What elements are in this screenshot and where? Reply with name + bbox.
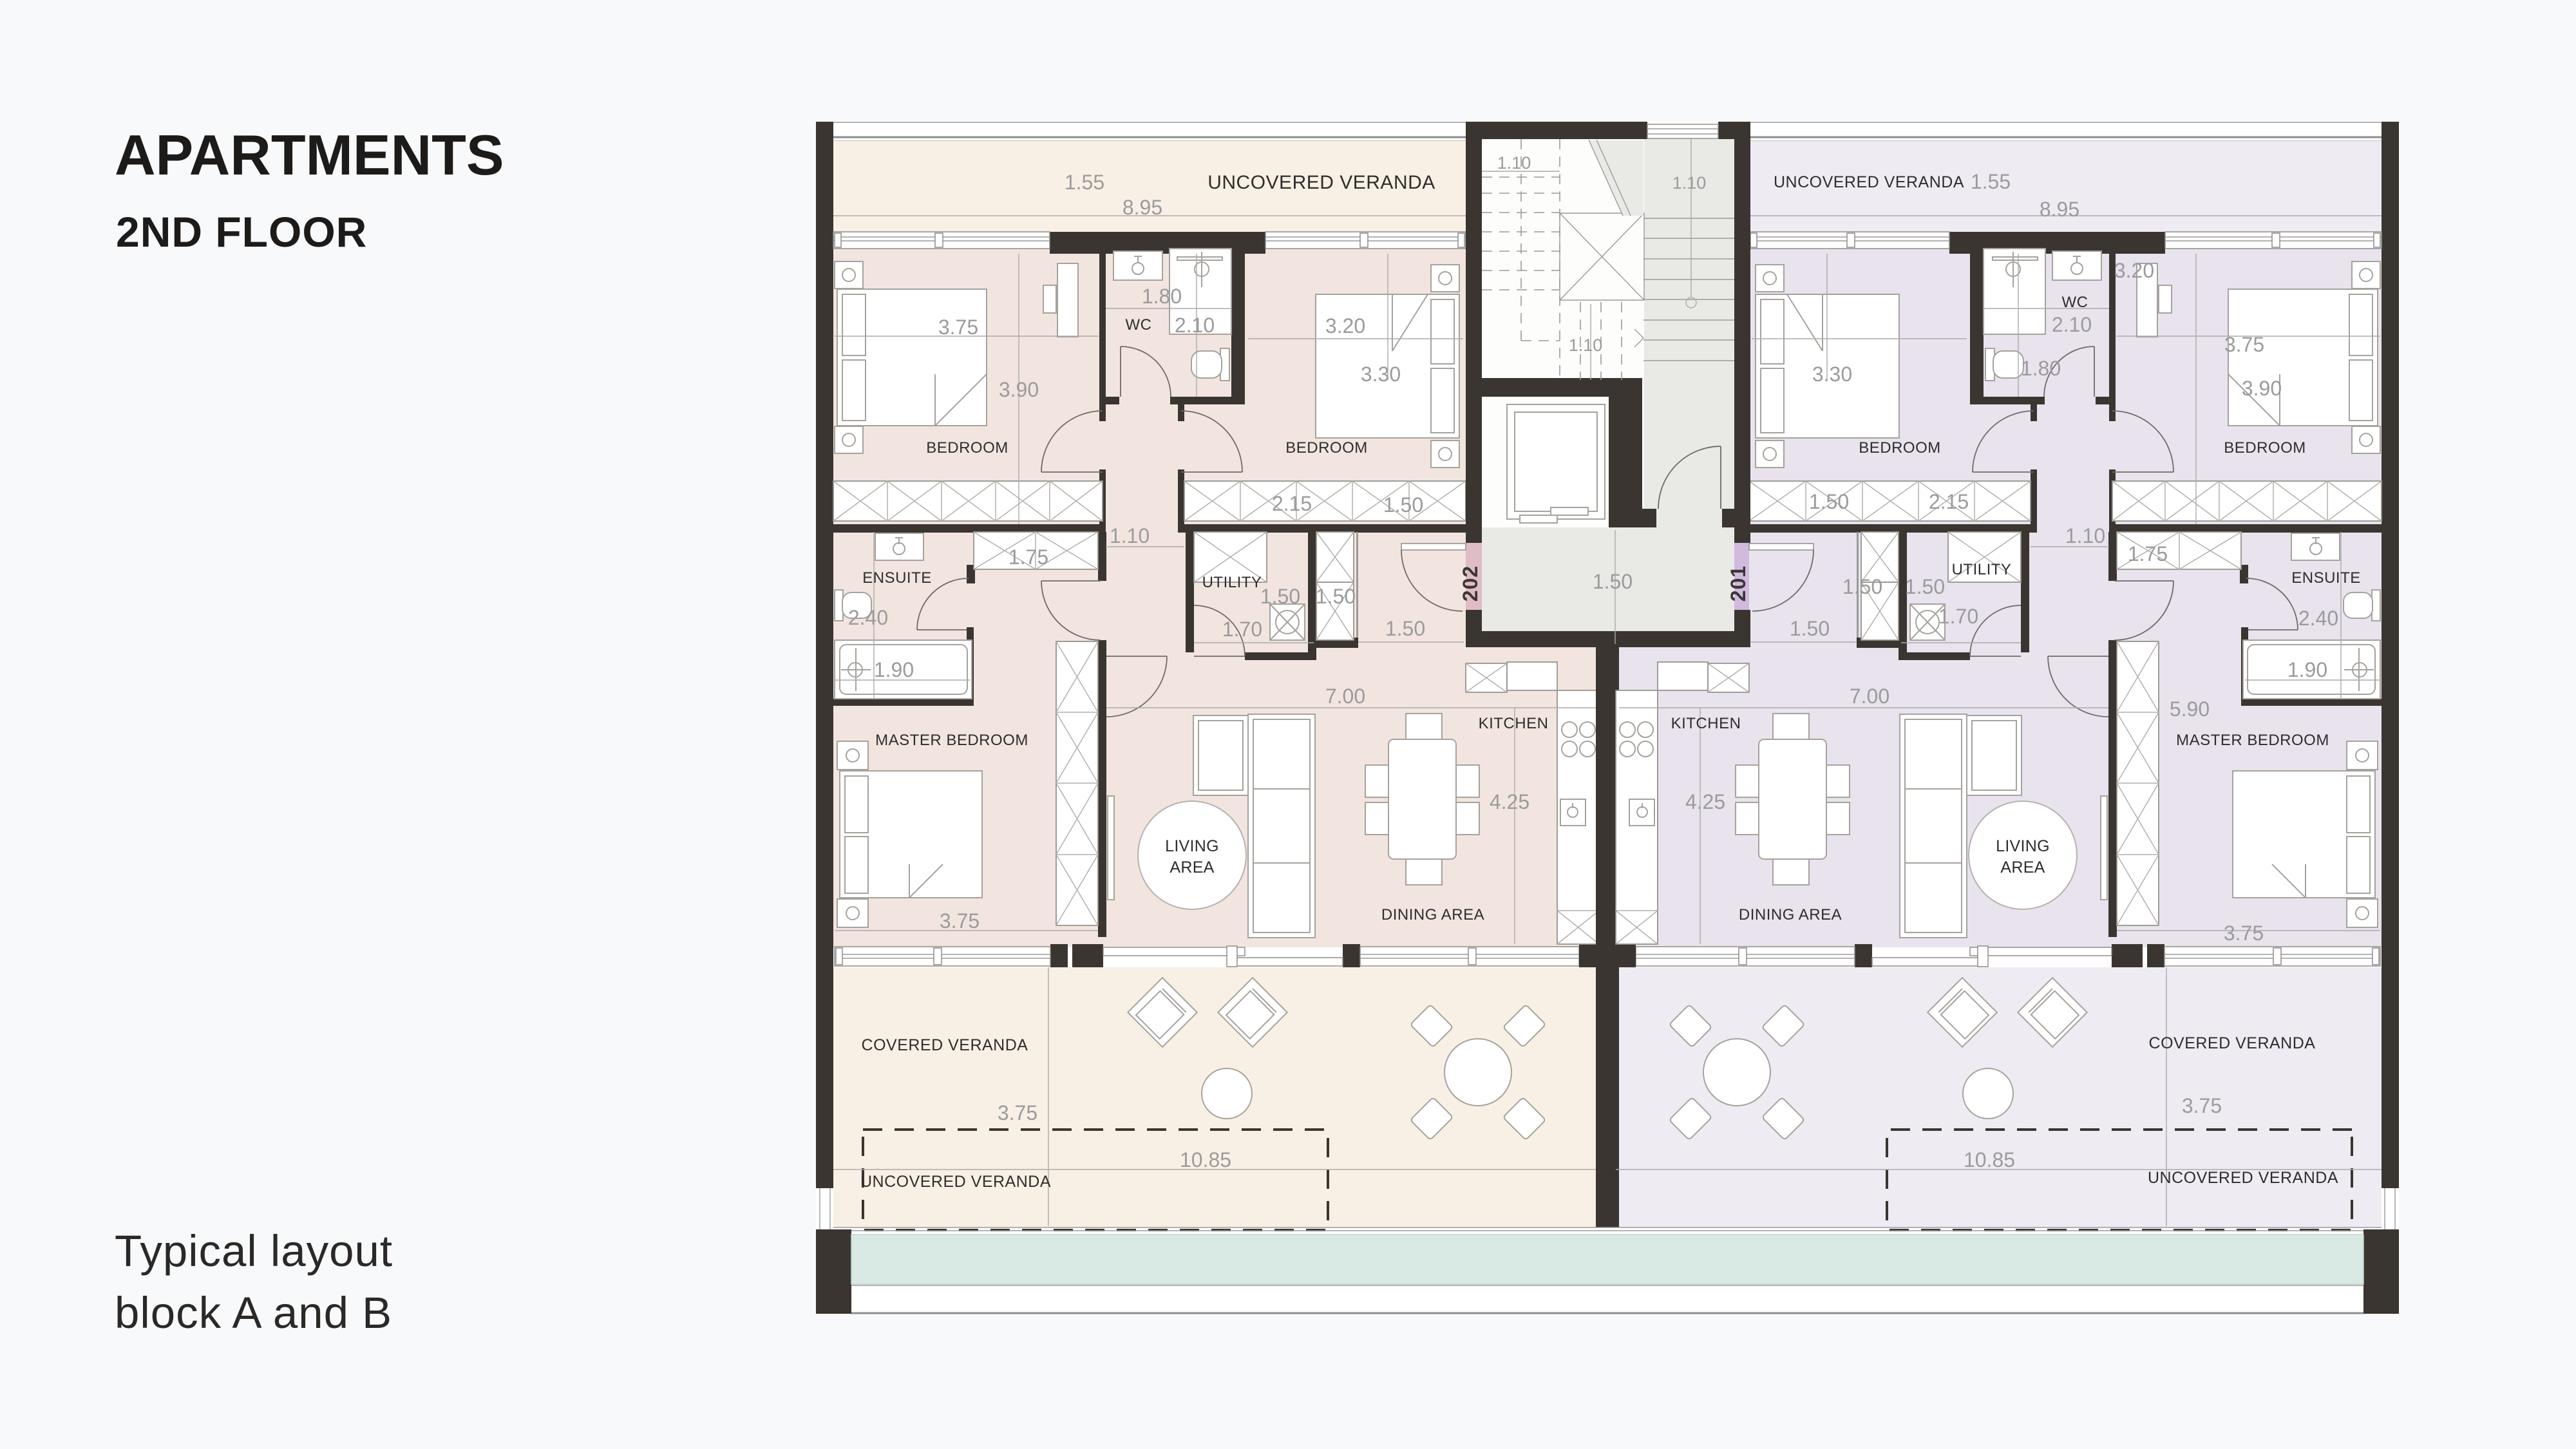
svg-text:Typical layout: Typical layout <box>115 1226 393 1276</box>
svg-text:KITCHEN: KITCHEN <box>1479 715 1549 732</box>
svg-text:7.00: 7.00 <box>1850 685 1889 708</box>
svg-text:WC: WC <box>2062 294 2088 311</box>
svg-text:block A and B: block A and B <box>115 1288 392 1338</box>
svg-text:KITCHEN: KITCHEN <box>1671 715 1741 732</box>
svg-text:1.10: 1.10 <box>1672 173 1707 193</box>
svg-text:BEDROOM: BEDROOM <box>1285 439 1368 457</box>
svg-text:3.75: 3.75 <box>938 316 978 339</box>
svg-text:2.10: 2.10 <box>2052 313 2092 336</box>
svg-text:8.95: 8.95 <box>2040 198 2079 221</box>
svg-text:2ND FLOOR: 2ND FLOOR <box>116 208 367 256</box>
svg-text:2.10: 2.10 <box>1175 314 1215 337</box>
svg-text:3.90: 3.90 <box>2242 377 2282 400</box>
svg-text:UTILITY: UTILITY <box>1202 574 1262 591</box>
svg-text:UTILITY: UTILITY <box>1952 561 2012 578</box>
svg-text:ENSUITE: ENSUITE <box>2291 569 2361 587</box>
svg-text:BEDROOM: BEDROOM <box>1859 439 1941 457</box>
svg-text:3.75: 3.75 <box>2182 1094 2222 1117</box>
svg-text:1.90: 1.90 <box>2287 658 2327 681</box>
svg-text:1.50: 1.50 <box>1316 585 1356 608</box>
svg-text:3.75: 3.75 <box>940 909 980 933</box>
svg-text:AREA: AREA <box>2000 858 2045 876</box>
svg-text:3.75: 3.75 <box>2224 333 2264 356</box>
svg-text:1.10: 1.10 <box>1569 336 1603 355</box>
svg-text:1.10: 1.10 <box>1110 524 1150 547</box>
svg-text:1.50: 1.50 <box>1790 617 1830 640</box>
svg-text:8.95: 8.95 <box>1122 196 1162 219</box>
svg-text:1.80: 1.80 <box>2021 357 2061 380</box>
svg-text:1.70: 1.70 <box>1222 618 1262 641</box>
svg-text:1.50: 1.50 <box>1383 493 1423 516</box>
svg-text:UNCOVERED VERANDA: UNCOVERED VERANDA <box>860 1173 1051 1191</box>
svg-text:5.90: 5.90 <box>2170 697 2210 721</box>
svg-text:4.25: 4.25 <box>1490 790 1529 813</box>
svg-text:4.25: 4.25 <box>1685 790 1725 813</box>
svg-text:MASTER BEDROOM: MASTER BEDROOM <box>875 732 1028 749</box>
svg-text:3.20: 3.20 <box>2114 259 2154 282</box>
svg-text:BEDROOM: BEDROOM <box>2224 439 2306 457</box>
svg-text:1.50: 1.50 <box>1905 575 1945 598</box>
svg-text:10.85: 10.85 <box>1964 1148 2015 1171</box>
svg-text:ENSUITE: ENSUITE <box>862 569 932 587</box>
svg-text:1.50: 1.50 <box>1260 585 1300 608</box>
svg-text:1.10: 1.10 <box>1497 153 1531 173</box>
svg-text:1.50: 1.50 <box>1385 617 1425 640</box>
svg-text:1.70: 1.70 <box>1938 605 1978 628</box>
svg-text:BEDROOM: BEDROOM <box>926 439 1009 457</box>
svg-text:2.40: 2.40 <box>848 606 888 629</box>
svg-text:LIVING: LIVING <box>1996 837 2050 855</box>
svg-text:2.40: 2.40 <box>2298 607 2338 630</box>
svg-text:1.80: 1.80 <box>1142 285 1182 308</box>
svg-text:UNCOVERED VERANDA: UNCOVERED VERANDA <box>1207 172 1435 193</box>
svg-text:2.15: 2.15 <box>1272 492 1312 515</box>
svg-text:1.75: 1.75 <box>2128 542 2168 565</box>
svg-text:1.50: 1.50 <box>1842 575 1882 598</box>
svg-text:1.10: 1.10 <box>2065 524 2105 547</box>
svg-text:3.30: 3.30 <box>1361 363 1401 386</box>
svg-text:7.00: 7.00 <box>1325 685 1365 708</box>
svg-text:202: 202 <box>1459 565 1482 601</box>
svg-text:UNCOVERED VERANDA: UNCOVERED VERANDA <box>2148 1169 2338 1187</box>
svg-text:1.50: 1.50 <box>1809 490 1849 513</box>
svg-text:1.75: 1.75 <box>1009 545 1048 569</box>
svg-text:AREA: AREA <box>1170 858 1214 876</box>
svg-text:COVERED VERANDA: COVERED VERANDA <box>2149 1034 2316 1052</box>
svg-text:1.50: 1.50 <box>1593 570 1633 593</box>
svg-text:UNCOVERED VERANDA: UNCOVERED VERANDA <box>1774 173 1964 191</box>
svg-text:3.20: 3.20 <box>1325 314 1365 337</box>
svg-text:3.30: 3.30 <box>1812 363 1852 386</box>
svg-text:COVERED VERANDA: COVERED VERANDA <box>862 1036 1028 1054</box>
svg-text:APARTMENTS: APARTMENTS <box>115 123 504 187</box>
svg-text:DINING AREA: DINING AREA <box>1739 906 1842 923</box>
svg-text:MASTER BEDROOM: MASTER BEDROOM <box>2176 732 2329 749</box>
svg-text:1.55: 1.55 <box>1971 170 2011 193</box>
svg-text:LIVING: LIVING <box>1165 837 1219 855</box>
svg-text:2.15: 2.15 <box>1929 490 1969 513</box>
svg-text:3.90: 3.90 <box>999 378 1039 401</box>
svg-text:3.75: 3.75 <box>2224 922 2264 945</box>
svg-text:3.75: 3.75 <box>998 1101 1037 1124</box>
svg-text:10.85: 10.85 <box>1180 1148 1231 1171</box>
svg-text:WC: WC <box>1126 316 1152 334</box>
svg-text:201: 201 <box>1727 565 1750 601</box>
svg-text:1.55: 1.55 <box>1065 171 1104 194</box>
svg-text:1.90: 1.90 <box>874 658 914 681</box>
svg-text:DINING AREA: DINING AREA <box>1381 906 1484 923</box>
